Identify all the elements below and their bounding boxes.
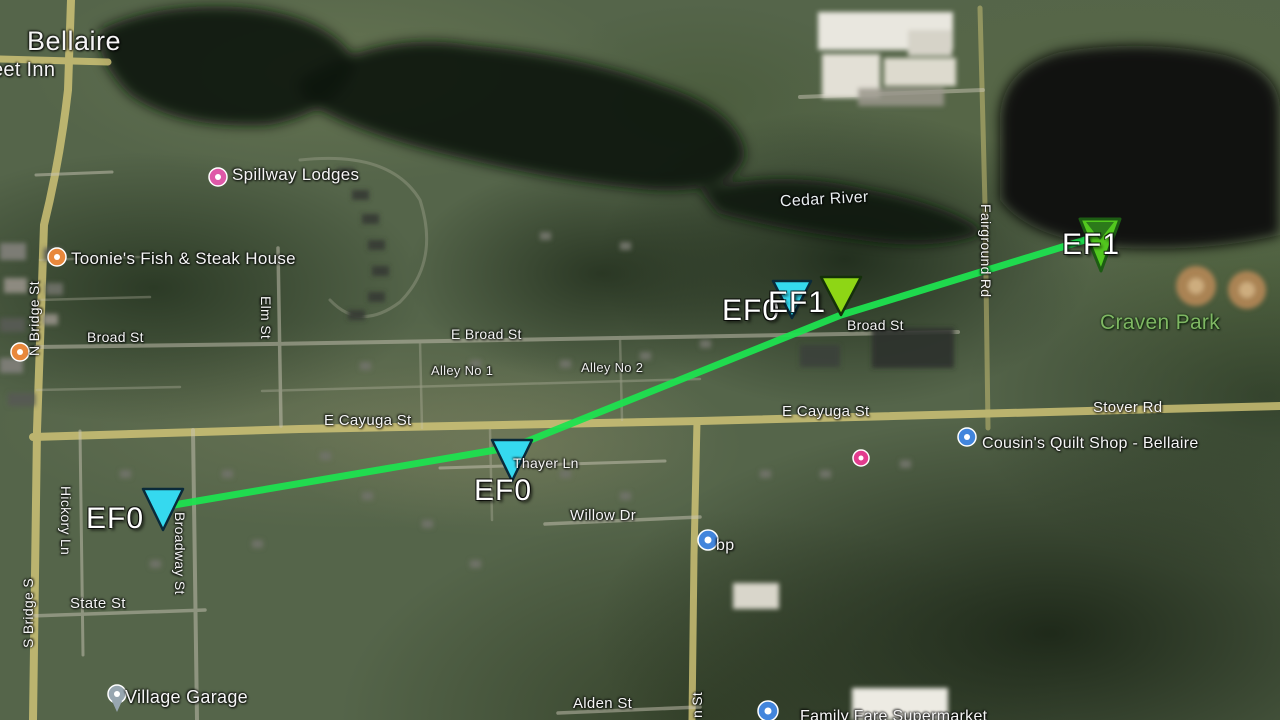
street-broadway-st: Broadway St <box>173 512 187 595</box>
swamp-center <box>299 42 745 191</box>
lodging-pin-spillway[interactable] <box>209 168 227 186</box>
ef-rating-label-end: EF1 <box>1062 230 1120 260</box>
street-alden-st: Alden St <box>573 696 632 711</box>
cedar-river-water <box>700 179 985 245</box>
town-label: Bellaire <box>27 28 121 55</box>
craven-park-label: Craven Park <box>1100 312 1220 333</box>
south-road <box>692 421 697 720</box>
alley-road <box>262 379 700 391</box>
toonies-label: Toonie's Fish & Steak House <box>71 250 296 267</box>
street-alley-no-1: Alley No 1 <box>431 364 493 377</box>
street-elm-st: Elm St <box>259 296 273 339</box>
street-s-bridge-st: S Bridge S <box>21 578 35 648</box>
street-n-bridge-st: N Bridge St <box>27 281 41 356</box>
lake-northeast <box>1000 46 1280 249</box>
hickory-ln-road <box>80 431 83 655</box>
ef-rating-label-broad-green: EF1 <box>768 288 826 318</box>
street-stover-rd: Stover Rd <box>1093 400 1162 415</box>
broadway-st-road <box>193 430 197 720</box>
downtown-cross-4 <box>37 387 180 390</box>
street-partial-n-st: n St <box>690 692 704 718</box>
bridge-st-road <box>33 0 71 720</box>
shop-pin-cousins[interactable] <box>958 428 976 446</box>
family-fare-label-clipped: Family Fare Supermarket <box>800 709 987 720</box>
gas-pin-bp[interactable] <box>698 530 718 550</box>
grid-road-1 <box>420 341 422 428</box>
street-thayer-ln: Thayer Ln <box>513 456 579 470</box>
ef-rating-label-thayer: EF0 <box>474 476 532 506</box>
street-e-cayuga-west: E Cayuga St <box>324 413 412 428</box>
satellite-map-bellaire[interactable]: Bellaire eet Inn Spillway Lodges Toonie'… <box>0 0 1280 720</box>
street-broad-st-east: Broad St <box>847 318 904 332</box>
pin-village-garage[interactable] <box>108 685 126 712</box>
bp-label: bp <box>716 538 734 554</box>
restaurant-pin-toonies[interactable] <box>48 248 66 266</box>
inn-label-partial: eet Inn <box>0 60 55 80</box>
street-willow-dr: Willow Dr <box>570 508 636 523</box>
street-e-broad-st: E Broad St <box>451 327 522 341</box>
street-e-cayuga-east: E Cayuga St <box>782 404 870 419</box>
spillway-lodges-label: Spillway Lodges <box>232 166 359 183</box>
ef-rating-label-start: EF0 <box>86 504 144 534</box>
street-fairground-rd: Fairground Rd <box>979 204 993 297</box>
elm-st-road <box>278 248 281 426</box>
street-broad-st-west: Broad St <box>87 330 144 344</box>
street-state-st: State St <box>70 596 126 611</box>
water-bodies <box>99 6 1280 248</box>
street-alley-no-2: Alley No 2 <box>581 361 643 374</box>
shop-pin-family-fare[interactable] <box>758 701 778 720</box>
ball-diamonds <box>1176 266 1266 309</box>
downtown-cross-3 <box>38 297 150 300</box>
street-hickory-ln: Hickory Ln <box>59 486 73 555</box>
cousins-quilt-shop-label: Cousin's Quilt Shop - Bellaire <box>982 436 1199 452</box>
pin-pink-cayuga[interactable] <box>853 450 869 466</box>
downtown-cross-1 <box>36 172 112 175</box>
village-garage-label: Village Garage <box>125 688 248 706</box>
